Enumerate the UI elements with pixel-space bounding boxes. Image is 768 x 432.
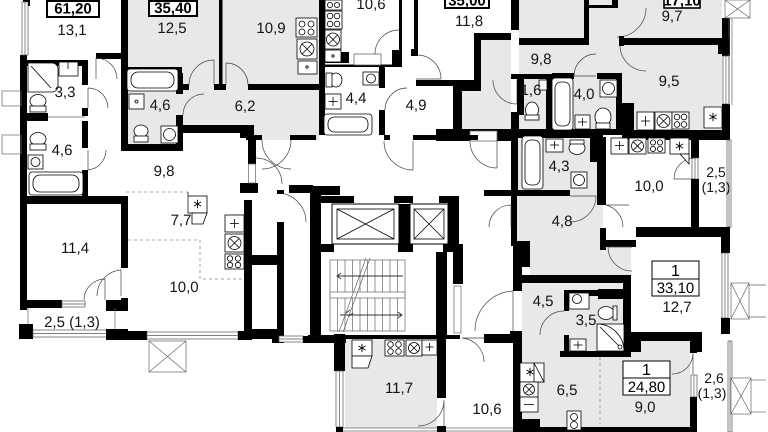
svg-text:2,6: 2,6	[704, 370, 724, 386]
svg-text:12,7: 12,7	[662, 299, 691, 316]
svg-text:33,10: 33,10	[657, 280, 695, 297]
svg-text:35,40: 35,40	[154, 0, 192, 17]
svg-text:4,6: 4,6	[52, 142, 73, 159]
svg-text:6,2: 6,2	[235, 98, 256, 115]
svg-text:10,6: 10,6	[472, 401, 501, 418]
svg-text:10,0: 10,0	[634, 178, 663, 195]
svg-text:3,5: 3,5	[576, 312, 597, 329]
svg-text:4,4: 4,4	[346, 90, 367, 107]
svg-text:9,8: 9,8	[531, 51, 552, 68]
svg-text:4,3: 4,3	[549, 158, 570, 175]
svg-text:4,9: 4,9	[406, 97, 427, 114]
svg-text:7,7: 7,7	[171, 212, 192, 229]
svg-text:9,5: 9,5	[659, 73, 680, 90]
svg-text:13,1: 13,1	[57, 22, 86, 39]
svg-text:10,0: 10,0	[169, 279, 198, 296]
svg-text:11,4: 11,4	[61, 240, 89, 257]
svg-text:10,9: 10,9	[256, 20, 285, 37]
svg-text:4,5: 4,5	[533, 293, 554, 310]
svg-text:2,5 (1,3): 2,5 (1,3)	[44, 314, 100, 331]
svg-text:24,80: 24,80	[628, 379, 666, 396]
svg-text:9,0: 9,0	[635, 399, 656, 416]
svg-text:12,5: 12,5	[157, 20, 186, 37]
svg-text:3,3: 3,3	[55, 84, 76, 101]
svg-text:1: 1	[671, 263, 680, 280]
svg-text:1,6: 1,6	[521, 82, 542, 99]
svg-text:61,20: 61,20	[54, 1, 92, 18]
svg-text:9,7: 9,7	[662, 8, 683, 25]
svg-text:35,00: 35,00	[448, 0, 486, 10]
svg-text:4,6: 4,6	[150, 97, 171, 114]
svg-text:4,8: 4,8	[552, 213, 573, 230]
svg-text:(1,3): (1,3)	[702, 179, 731, 195]
svg-text:11,8: 11,8	[455, 13, 483, 30]
svg-text:10,6: 10,6	[356, 0, 385, 13]
svg-text:11,7: 11,7	[385, 380, 413, 397]
svg-text:6,5: 6,5	[557, 382, 578, 399]
svg-text:(1,3): (1,3)	[698, 385, 727, 401]
svg-text:4,0: 4,0	[574, 86, 595, 103]
svg-text:9,8: 9,8	[154, 163, 175, 180]
svg-text:1: 1	[642, 362, 651, 379]
svg-text:2,5: 2,5	[706, 164, 726, 180]
